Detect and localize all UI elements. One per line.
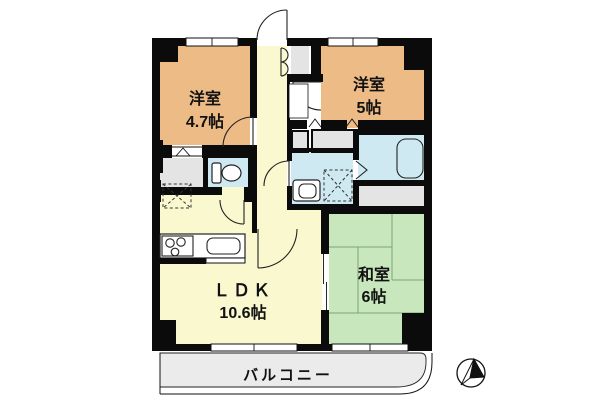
window-ldk <box>211 344 297 351</box>
window-tatami <box>332 344 408 351</box>
western-room-1-size: 4.7帖 <box>186 112 224 131</box>
window-west2 <box>328 38 378 46</box>
floorplan-canvas: 洋室 4.7帖 洋室 5帖 ＬＤＫ 10.6帖 和室 6帖 バルコニー <box>0 0 600 400</box>
western-room-1-name: 洋室 <box>189 89 221 108</box>
entrance-storage <box>289 84 308 118</box>
window-west1 <box>186 38 238 46</box>
washbasin-icon <box>293 180 320 201</box>
ldk-size: 10.6帖 <box>219 303 266 322</box>
closet-west1 <box>160 158 203 187</box>
entrance-floor <box>291 46 309 74</box>
western-room-2-size: 5帖 <box>357 98 382 117</box>
closet-tatami <box>358 186 424 206</box>
western-room-2-name: 洋室 <box>353 75 385 94</box>
tatami-room-name: 和室 <box>358 265 390 284</box>
kitchen-counter <box>160 234 245 264</box>
balcony-label: バルコニー <box>243 367 333 384</box>
bathroom-floor <box>358 135 424 182</box>
floorplan-svg: 洋室 4.7帖 洋室 5帖 ＬＤＫ 10.6帖 和室 6帖 バルコニー <box>0 0 600 400</box>
ldk-name: ＬＤＫ <box>213 281 273 300</box>
tatami-room-size: 6帖 <box>362 287 387 306</box>
toilet-icon <box>212 163 241 183</box>
